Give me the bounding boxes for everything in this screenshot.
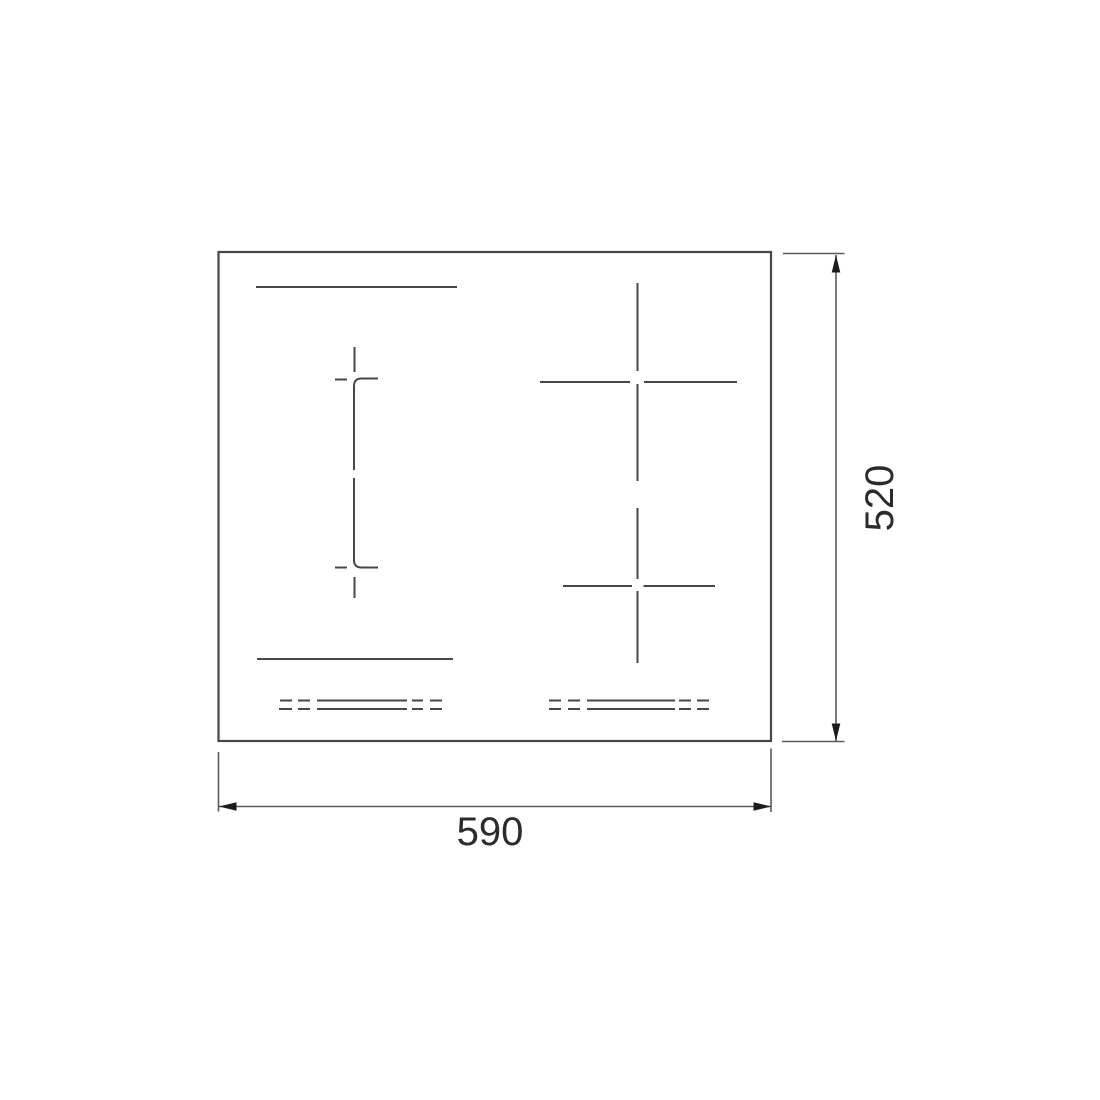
flex-zone-marker [335, 347, 378, 598]
width-dimension-label: 590 [457, 810, 524, 854]
flex-zone-bracket-bottom [354, 478, 378, 568]
control-marks-right [549, 701, 709, 710]
height-arrow-bottom-icon [832, 724, 841, 742]
drawing-canvas: 590 520 [0, 0, 1100, 1100]
flex-zone-bracket-top [354, 379, 378, 471]
burner-cross-bottom-right [563, 508, 715, 663]
hob-dimension-diagram: 590 520 [0, 0, 1100, 1100]
control-marks-left [279, 701, 442, 710]
height-arrow-top-icon [832, 255, 841, 273]
cooktop-outline [219, 252, 772, 741]
width-arrow-left-icon [219, 802, 237, 811]
height-dimension-label: 520 [858, 465, 902, 532]
burner-cross-top-right [540, 283, 737, 481]
width-arrow-right-icon [754, 802, 772, 811]
dimension-height: 520 [782, 254, 902, 742]
dimension-width: 590 [219, 749, 772, 855]
